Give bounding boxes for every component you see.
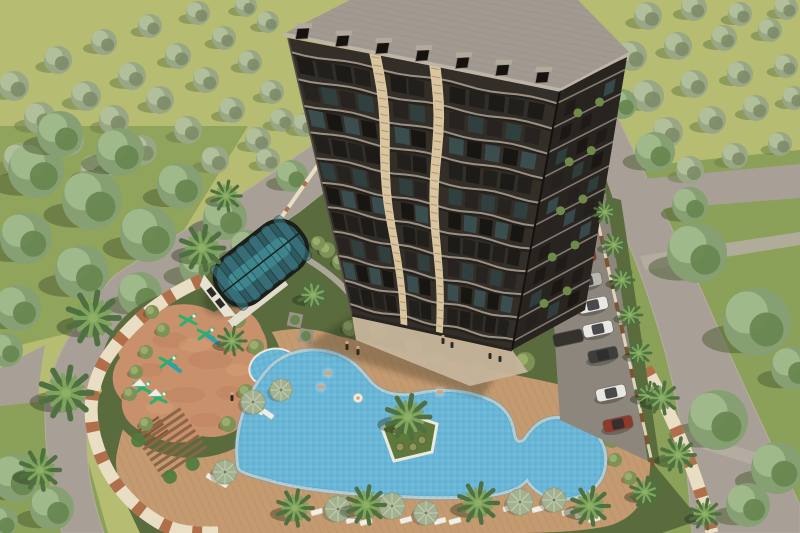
roof-dormer-cap <box>415 45 432 50</box>
person-swimming <box>324 371 332 375</box>
balcony-plant <box>565 157 574 166</box>
palm-crown <box>637 351 641 355</box>
umbrella-pole <box>553 499 556 502</box>
balcony-plant <box>595 98 604 107</box>
window <box>449 137 464 156</box>
tree-canopy-dark <box>115 145 139 169</box>
tree-canopy-dark <box>619 100 634 115</box>
planter-tree <box>290 315 300 325</box>
tree-canopy-dark <box>265 157 277 169</box>
umbrella-pole <box>224 471 227 474</box>
balcony-plant <box>548 253 557 262</box>
person-body <box>346 344 349 350</box>
swing-seat <box>172 356 175 359</box>
island-shrub <box>409 443 417 451</box>
tree-canopy-dark <box>2 345 19 362</box>
palm-crown <box>363 502 370 509</box>
tree-canopy-dark <box>147 23 159 35</box>
palm-crown <box>702 511 707 516</box>
umbrella-pole <box>425 512 428 515</box>
window <box>497 198 512 216</box>
person-head <box>356 346 359 349</box>
window <box>465 191 479 210</box>
window <box>419 278 430 296</box>
balcony-plant <box>556 206 565 215</box>
balcony-plant <box>540 299 549 308</box>
tree-canopy-dark <box>783 63 795 75</box>
tree-canopy-dark <box>266 19 277 30</box>
palm-crown <box>223 193 228 198</box>
palm-crown <box>620 278 624 282</box>
window <box>448 212 461 231</box>
roof-dormer-cap <box>295 23 312 28</box>
bush-highlight <box>146 306 154 314</box>
person-walking <box>498 353 501 362</box>
window <box>479 218 493 236</box>
window <box>361 120 378 139</box>
window <box>524 126 541 145</box>
playground-mottle <box>179 338 211 352</box>
tree-canopy-dark <box>175 180 198 203</box>
window <box>485 144 501 163</box>
person-head <box>230 392 233 395</box>
tree-canopy-dark <box>11 82 26 97</box>
window <box>449 162 463 181</box>
tree-canopy-dark <box>629 52 644 67</box>
window <box>477 242 490 260</box>
tree-canopy-dark <box>175 52 188 65</box>
window <box>421 302 432 320</box>
tree-canopy-dark <box>30 162 58 190</box>
window <box>469 90 486 109</box>
palm-crown <box>675 452 681 458</box>
window <box>481 194 496 212</box>
tree-canopy-dark <box>709 116 723 130</box>
tree-canopy-dark <box>47 502 69 524</box>
roof-dormer-cap <box>375 38 392 43</box>
island-shrub <box>396 443 404 451</box>
window <box>412 155 426 174</box>
tree-canopy-dark <box>244 3 255 14</box>
window <box>467 141 482 160</box>
palm-crown <box>36 466 43 473</box>
tree-canopy-dark <box>279 117 291 129</box>
window <box>483 169 498 188</box>
roof-dormer-window <box>455 57 469 69</box>
bush-highlight <box>312 237 320 245</box>
person-body <box>451 342 454 348</box>
tree-canopy-dark <box>691 4 704 17</box>
tree-canopy-dark <box>743 499 765 521</box>
umbrella-pole <box>337 508 340 511</box>
tree-canopy-dark <box>651 146 671 166</box>
window <box>410 104 426 123</box>
playground-mottle <box>226 364 250 376</box>
roof-dormer-window <box>375 42 389 54</box>
tree-canopy-dark <box>76 264 103 291</box>
window <box>397 152 412 171</box>
tree-canopy-dark <box>229 106 242 119</box>
tree-canopy-dark <box>221 35 233 47</box>
planter-tree <box>301 331 311 341</box>
person-walking <box>230 392 233 401</box>
person-walking <box>441 335 444 344</box>
tree-canopy-dark <box>142 226 170 254</box>
window <box>411 130 426 149</box>
person-head <box>345 341 348 344</box>
person-body <box>357 349 360 355</box>
window <box>513 201 529 219</box>
window <box>403 226 416 245</box>
umbrella-pole <box>519 501 522 504</box>
tree-canopy-dark <box>255 136 268 149</box>
window <box>490 269 503 287</box>
tree-canopy-dark <box>686 200 704 218</box>
swing-seat <box>210 328 213 331</box>
window <box>476 266 489 284</box>
window <box>488 94 505 113</box>
window <box>495 221 509 239</box>
balcony-plant <box>563 286 572 295</box>
umbrella-pole <box>280 389 283 392</box>
window <box>460 311 471 329</box>
window <box>448 236 460 255</box>
bush-highlight <box>140 418 148 426</box>
tree-canopy-dark <box>55 128 78 151</box>
tree-canopy-dark <box>269 89 281 101</box>
window <box>487 292 500 310</box>
window <box>408 78 424 97</box>
tree-canopy-dark <box>13 302 36 325</box>
balcony-plant <box>571 240 580 249</box>
palm-crown <box>603 210 607 214</box>
tree-canopy-dark <box>247 59 259 71</box>
window <box>447 308 458 326</box>
bush-highlight <box>250 341 259 350</box>
tree-canopy-dark <box>675 42 689 56</box>
palm-crown <box>659 395 665 401</box>
window <box>500 173 516 192</box>
window <box>486 119 502 138</box>
person-walking <box>356 346 359 355</box>
tree-canopy-dark <box>83 92 98 107</box>
umbrella-pole <box>252 401 255 404</box>
swing-seat <box>192 314 195 317</box>
palm-crown <box>587 503 594 510</box>
window <box>415 205 428 224</box>
palm-crown <box>612 243 616 247</box>
window <box>517 176 533 194</box>
palm-crown <box>292 505 298 511</box>
window <box>448 284 459 302</box>
tree-canopy-dark <box>737 70 750 83</box>
tree-canopy-dark <box>750 312 784 346</box>
tree-canopy-dark <box>691 80 705 94</box>
window <box>510 225 525 243</box>
window <box>392 101 408 120</box>
balcony-plant <box>578 195 587 204</box>
balcony-plant <box>573 108 582 117</box>
tree-canopy-dark <box>645 12 659 26</box>
playground-mottle <box>165 387 205 403</box>
window <box>449 188 463 207</box>
tree-canopy-dark <box>721 34 734 47</box>
bush-highlight <box>609 454 617 462</box>
palm-crown <box>61 388 70 397</box>
person-head <box>450 339 453 342</box>
bush-highlight <box>624 472 632 480</box>
bush-highlight <box>130 366 138 374</box>
window <box>464 215 477 234</box>
palm-crown <box>628 313 632 317</box>
person-body <box>231 395 234 401</box>
person-swimming <box>436 390 444 394</box>
window <box>418 254 430 273</box>
pool-float-person <box>356 396 360 400</box>
tree-canopy-dark <box>737 11 749 23</box>
window <box>399 178 413 197</box>
person-body <box>499 356 502 362</box>
architectural-render <box>0 0 800 533</box>
tree-canopy-dark <box>20 231 46 257</box>
roof-dormer-window <box>335 35 349 47</box>
person-head <box>498 353 501 356</box>
window <box>520 151 537 170</box>
tree-canopy-dark <box>85 192 115 222</box>
palm-crown <box>404 413 412 421</box>
window <box>463 239 476 257</box>
window <box>468 115 484 134</box>
window <box>394 126 410 145</box>
tree-canopy-dark <box>203 76 216 89</box>
playground-mottle <box>190 413 222 427</box>
palm-crown <box>198 244 206 252</box>
window <box>417 229 430 248</box>
island-shrub <box>418 436 426 444</box>
roof-dormer-cap <box>455 52 472 57</box>
tree-canopy-dark <box>157 96 171 110</box>
balcony-plant <box>587 146 596 155</box>
window <box>407 275 419 293</box>
window <box>474 290 486 308</box>
window <box>472 313 483 331</box>
tree-canopy-dark <box>55 56 69 70</box>
person-head <box>441 335 444 338</box>
window <box>527 102 545 121</box>
tree-canopy-dark <box>690 245 720 275</box>
tree-canopy-dark <box>777 141 789 153</box>
window <box>466 166 481 185</box>
palm-crown <box>88 313 97 322</box>
roof-dormer-cap <box>495 60 512 65</box>
tree-canopy-dark <box>195 10 207 22</box>
roof-dormer-window <box>415 50 429 62</box>
window <box>462 263 474 281</box>
person-walking <box>450 339 453 348</box>
person-walking <box>488 350 491 359</box>
tree-canopy-dark <box>711 412 741 442</box>
bush-highlight <box>124 388 132 396</box>
window <box>492 245 506 263</box>
window <box>505 123 522 142</box>
bush-highlight <box>222 418 231 427</box>
tree-canopy-dark <box>687 166 701 180</box>
person-swimming <box>317 385 325 389</box>
tree-canopy-dark <box>771 461 797 487</box>
person-walking <box>345 341 348 350</box>
person-body <box>442 338 445 344</box>
tree-canopy-dark <box>732 152 745 165</box>
tree-canopy-dark <box>185 126 199 140</box>
swing-seat <box>162 392 165 395</box>
swing-seat <box>146 382 149 385</box>
tree-canopy-dark <box>212 156 226 170</box>
window <box>508 98 525 117</box>
bush-highlight <box>157 324 165 332</box>
window <box>450 86 466 105</box>
window <box>364 146 380 165</box>
roof-dormer-cap <box>335 31 352 36</box>
scene-svg <box>0 0 800 533</box>
window <box>405 251 417 270</box>
tree-canopy-dark <box>644 92 660 108</box>
window <box>502 148 518 167</box>
window <box>448 260 460 278</box>
tree-canopy-dark <box>753 104 766 117</box>
person-head <box>488 350 491 353</box>
bush-highlight <box>140 346 148 354</box>
window <box>461 287 473 305</box>
tree-canopy-dark <box>783 5 795 17</box>
roof-dormer-window <box>495 64 509 76</box>
person-body <box>489 353 492 359</box>
tree-canopy-dark <box>220 212 242 234</box>
window <box>485 316 497 334</box>
window <box>401 202 415 221</box>
palm-crown <box>474 499 481 506</box>
window <box>390 75 407 94</box>
palm-crown <box>229 338 234 343</box>
window <box>409 300 420 318</box>
tree-canopy-dark <box>129 72 143 86</box>
tree-canopy-dark <box>101 38 114 51</box>
window <box>449 112 464 131</box>
tree-canopy-dark <box>767 27 779 39</box>
roof-dormer-cap <box>535 67 552 72</box>
roof-dormer-window <box>295 28 309 40</box>
palm-crown <box>310 292 315 297</box>
palm-crown <box>642 489 647 494</box>
roof-dormer-window <box>535 72 549 84</box>
window <box>414 181 428 200</box>
window <box>357 94 374 113</box>
umbrella-pole <box>391 505 394 508</box>
